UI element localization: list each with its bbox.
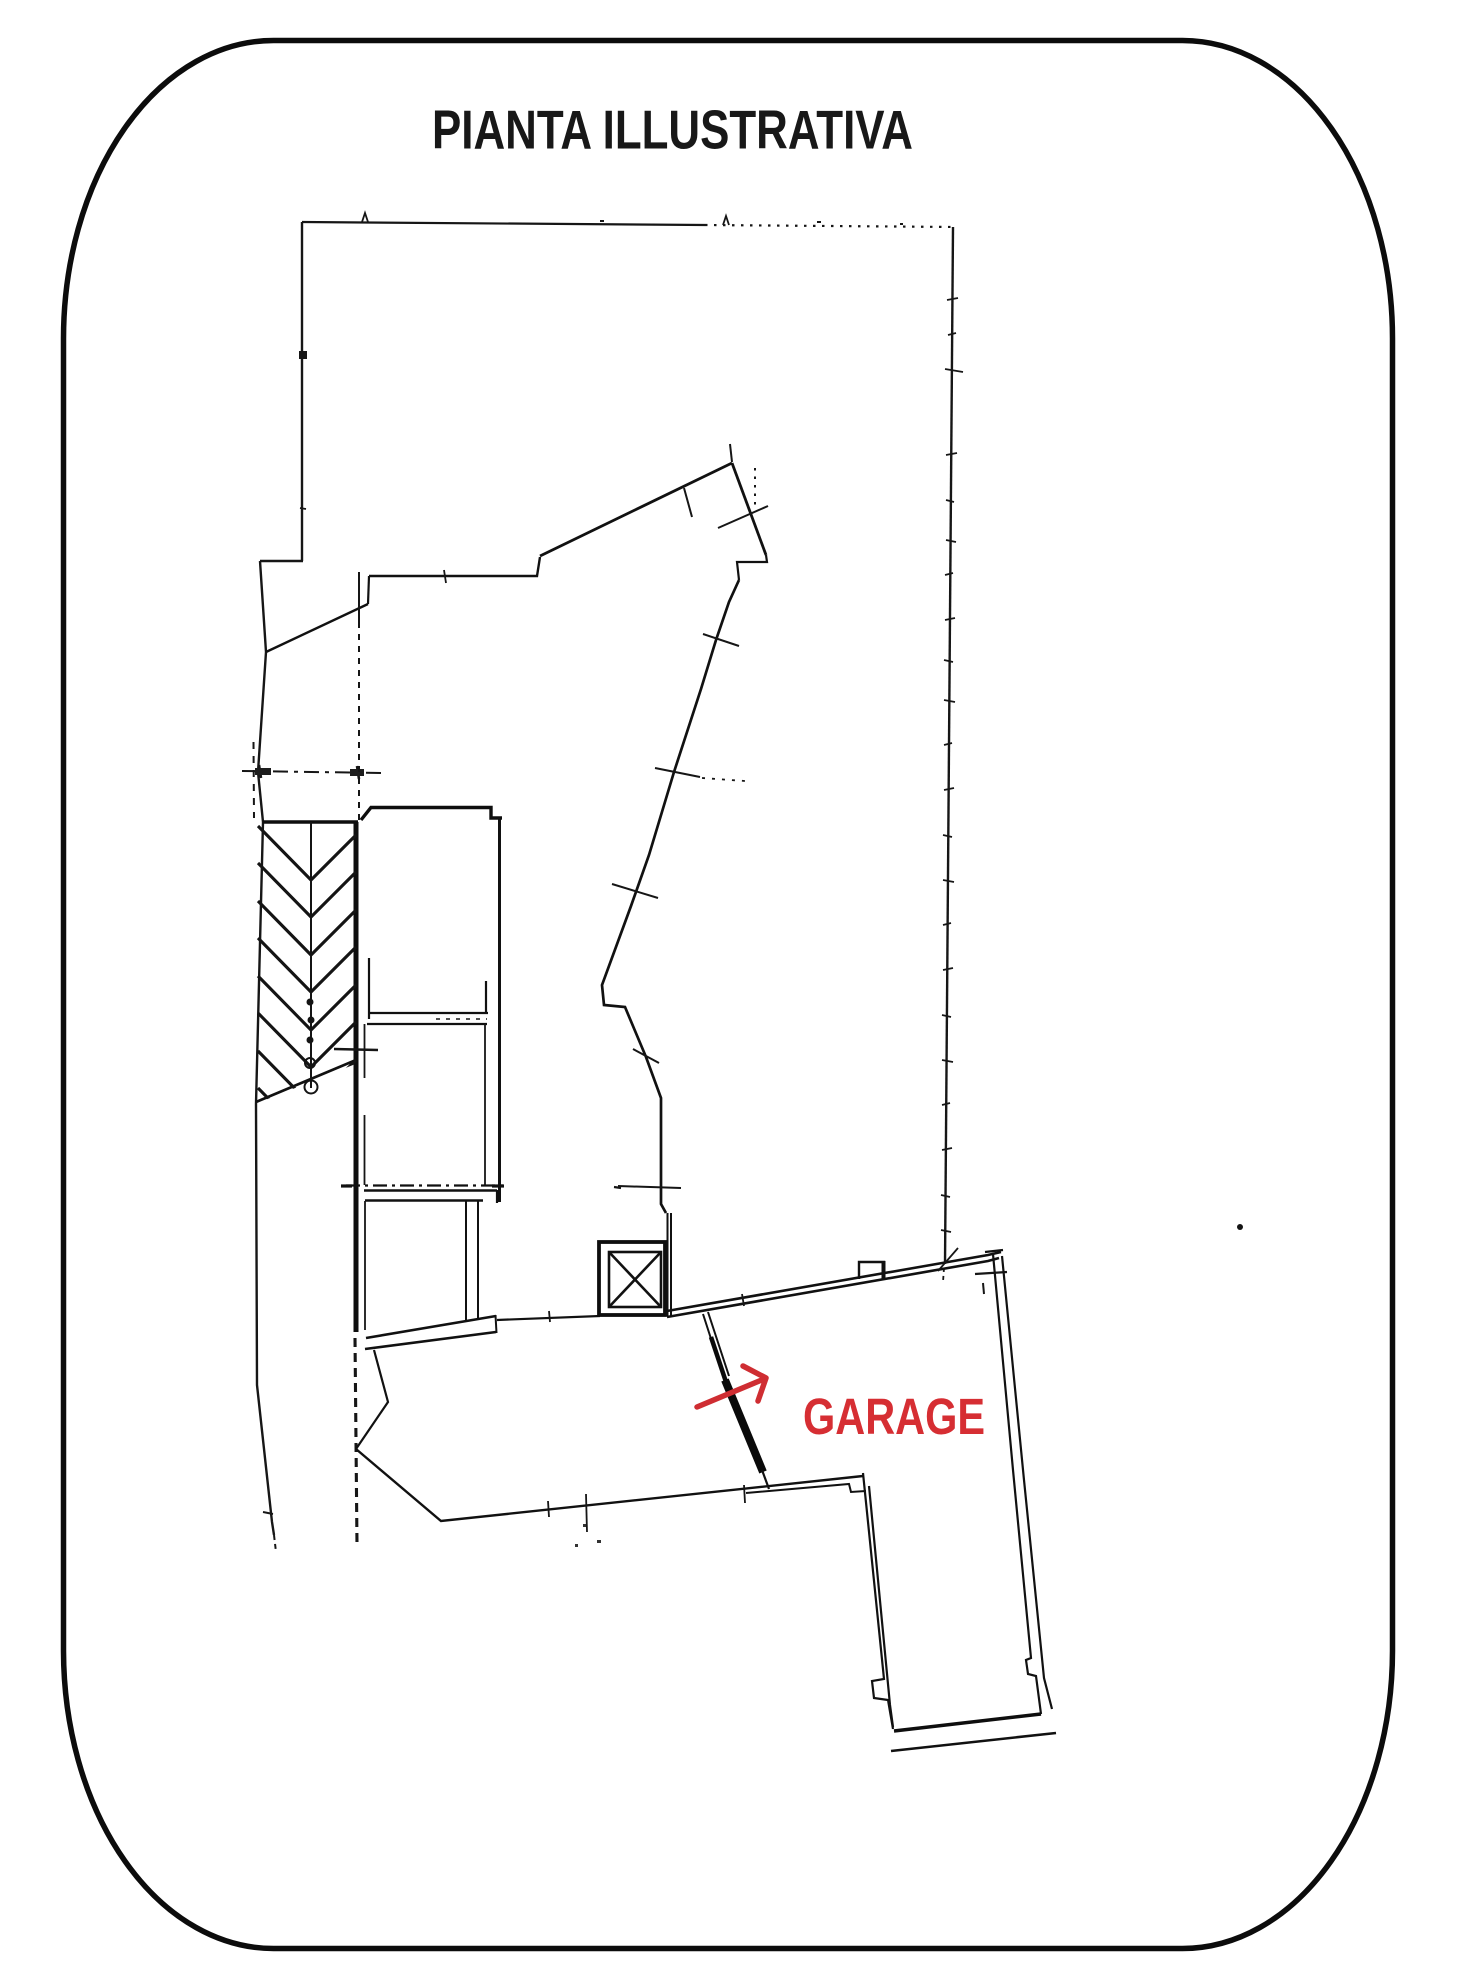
svg-text:GARAGE: GARAGE xyxy=(803,1388,985,1445)
svg-text:PIANTA ILLUSTRATIVA: PIANTA ILLUSTRATIVA xyxy=(432,99,913,161)
